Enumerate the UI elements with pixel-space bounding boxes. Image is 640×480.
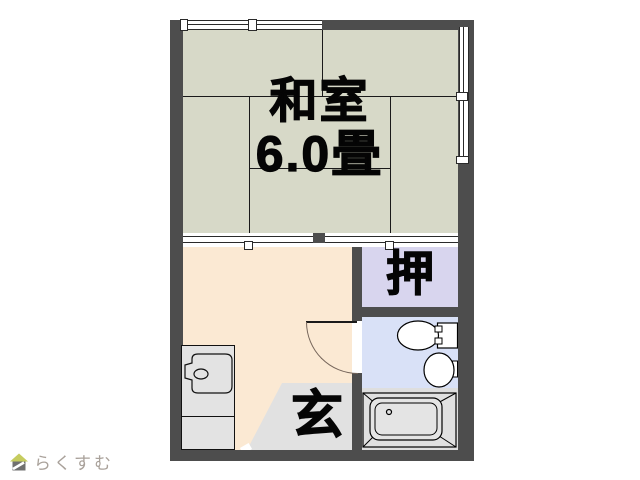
toilet-hinge	[435, 338, 442, 344]
toilet-bowl	[398, 321, 439, 350]
bathtub	[362, 388, 458, 450]
sliding-door-tick	[244, 241, 253, 250]
sliding-door-center-stub	[313, 233, 325, 243]
closet-label: 押	[362, 249, 458, 301]
sink-counter-divider	[182, 416, 234, 417]
tatami-room-name: 和室	[181, 76, 458, 128]
kitchen-sink-unit	[181, 345, 235, 450]
watermark-text: らくすむ	[34, 449, 114, 474]
bathroom-fixtures	[362, 317, 458, 388]
sink-basin	[182, 346, 236, 416]
toilet-hinge	[435, 326, 442, 332]
wash-basin	[424, 353, 454, 387]
tatami-room-label: 和室 6.0畳	[181, 76, 458, 180]
house-icon	[9, 452, 29, 472]
wall-bottom	[170, 450, 474, 461]
watermark: らくすむ	[9, 449, 114, 474]
window-top-endcap	[180, 19, 188, 31]
entrance-label: 玄	[286, 388, 348, 444]
window-top-tick	[248, 19, 257, 31]
floorplan-canvas: 和室 6.0畳 押 玄 らくすむ	[0, 0, 640, 480]
tatami-room-size: 6.0畳	[181, 128, 458, 180]
wall-closet-bottom	[352, 307, 458, 317]
